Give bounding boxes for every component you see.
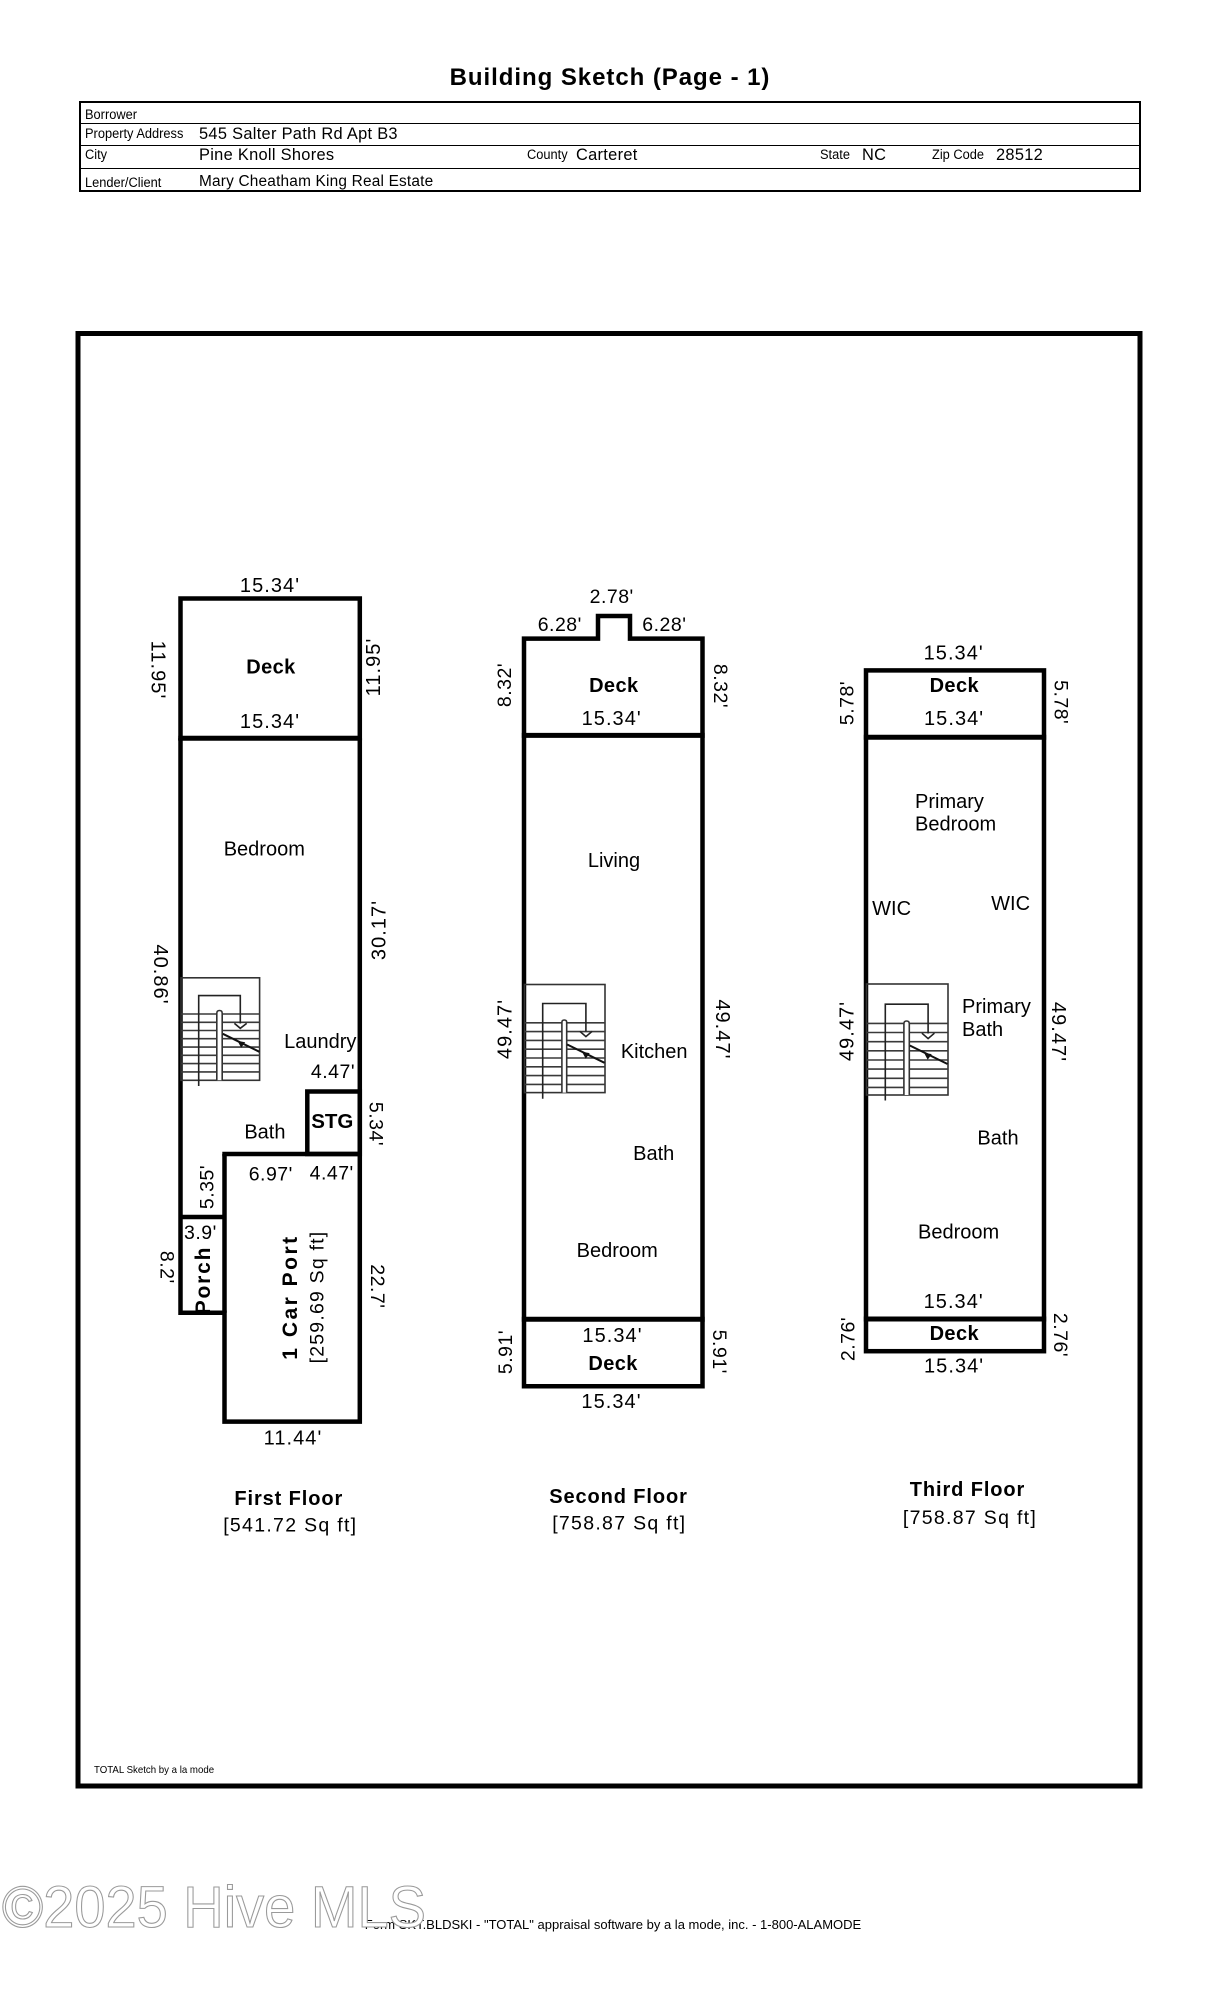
svg-text:6.97': 6.97' xyxy=(249,1164,293,1186)
svg-text:5.34': 5.34' xyxy=(365,1102,387,1146)
svg-text:4.47': 4.47' xyxy=(310,1163,354,1185)
svg-text:Second Floor: Second Floor xyxy=(549,1486,688,1508)
svg-text:4.47': 4.47' xyxy=(311,1061,355,1083)
svg-text:WIC: WIC xyxy=(991,893,1030,915)
svg-text:Bedroom: Bedroom xyxy=(577,1240,658,1262)
svg-text:15.34': 15.34' xyxy=(924,708,984,730)
svg-text:Bedroom: Bedroom xyxy=(918,1221,999,1243)
svg-text:5.78': 5.78' xyxy=(1049,680,1071,724)
svg-text:WIC: WIC xyxy=(872,898,911,920)
svg-text:Bath: Bath xyxy=(244,1121,285,1143)
svg-text:5.78': 5.78' xyxy=(837,681,859,725)
svg-text:15.34': 15.34' xyxy=(240,711,300,733)
svg-text:[259.69 Sq ft]: [259.69 Sq ft] xyxy=(307,1231,329,1364)
svg-text:8.32': 8.32' xyxy=(709,664,731,708)
svg-text:[758.87 Sq ft]: [758.87 Sq ft] xyxy=(552,1513,686,1535)
svg-text:49.47': 49.47' xyxy=(495,999,517,1059)
svg-text:Primary: Primary xyxy=(915,791,984,813)
svg-text:Bedroom: Bedroom xyxy=(915,814,996,836)
svg-text:Bath: Bath xyxy=(962,1019,1003,1041)
svg-text:Deck: Deck xyxy=(930,1323,980,1345)
svg-text:1 Car Port: 1 Car Port xyxy=(279,1234,302,1359)
svg-text:49.47': 49.47' xyxy=(711,999,733,1059)
svg-text:15.34': 15.34' xyxy=(240,575,300,597)
svg-text:Bath: Bath xyxy=(977,1128,1018,1150)
svg-text:30.17': 30.17' xyxy=(369,900,391,960)
svg-text:3.9': 3.9' xyxy=(184,1222,217,1244)
svg-text:22.7': 22.7' xyxy=(366,1264,388,1308)
svg-text:5.91': 5.91' xyxy=(495,1330,517,1374)
svg-text:11.44': 11.44' xyxy=(264,1427,323,1449)
svg-text:Bath: Bath xyxy=(633,1143,674,1165)
svg-text:15.34': 15.34' xyxy=(924,642,984,664)
svg-text:2.76': 2.76' xyxy=(1049,1313,1071,1357)
svg-text:11.95': 11.95' xyxy=(363,638,385,697)
svg-text:40.86': 40.86' xyxy=(149,944,171,1004)
svg-text:Deck: Deck xyxy=(589,675,639,697)
svg-text:49.47': 49.47' xyxy=(1047,1002,1069,1062)
svg-text:5.35': 5.35' xyxy=(197,1165,219,1209)
svg-text:[758.87 Sq ft]: [758.87 Sq ft] xyxy=(903,1507,1037,1529)
svg-text:Porch: Porch xyxy=(192,1246,215,1315)
svg-text:6.28': 6.28' xyxy=(642,614,686,636)
svg-text:STG: STG xyxy=(311,1110,353,1133)
svg-text:6.28': 6.28' xyxy=(538,614,582,636)
svg-text:Laundry: Laundry xyxy=(284,1031,356,1053)
svg-text:5.91': 5.91' xyxy=(708,1330,730,1374)
svg-text:15.34': 15.34' xyxy=(924,1355,984,1377)
svg-text:15.34': 15.34' xyxy=(581,1391,641,1413)
svg-text:Deck: Deck xyxy=(588,1353,638,1375)
svg-text:Deck: Deck xyxy=(246,657,296,679)
svg-text:8.2': 8.2' xyxy=(156,1251,178,1284)
svg-text:2.78': 2.78' xyxy=(590,586,634,608)
svg-text:Kitchen: Kitchen xyxy=(621,1041,688,1063)
svg-text:8.32': 8.32' xyxy=(494,663,516,707)
svg-text:Primary: Primary xyxy=(962,996,1031,1018)
svg-text:Deck: Deck xyxy=(930,675,980,697)
svg-text:[541.72 Sq ft]: [541.72 Sq ft] xyxy=(223,1515,357,1537)
svg-text:11.95': 11.95' xyxy=(147,641,169,700)
svg-text:15.34': 15.34' xyxy=(924,1291,984,1313)
svg-text:49.47': 49.47' xyxy=(837,1001,859,1061)
svg-text:15.34': 15.34' xyxy=(582,1325,642,1347)
svg-text:Third Floor: Third Floor xyxy=(910,1479,1025,1501)
svg-text:First Floor: First Floor xyxy=(234,1488,343,1510)
svg-text:Living: Living xyxy=(588,850,640,872)
svg-text:2.76': 2.76' xyxy=(838,1317,860,1361)
svg-text:Bedroom: Bedroom xyxy=(224,839,305,861)
svg-text:15.34': 15.34' xyxy=(582,708,642,730)
